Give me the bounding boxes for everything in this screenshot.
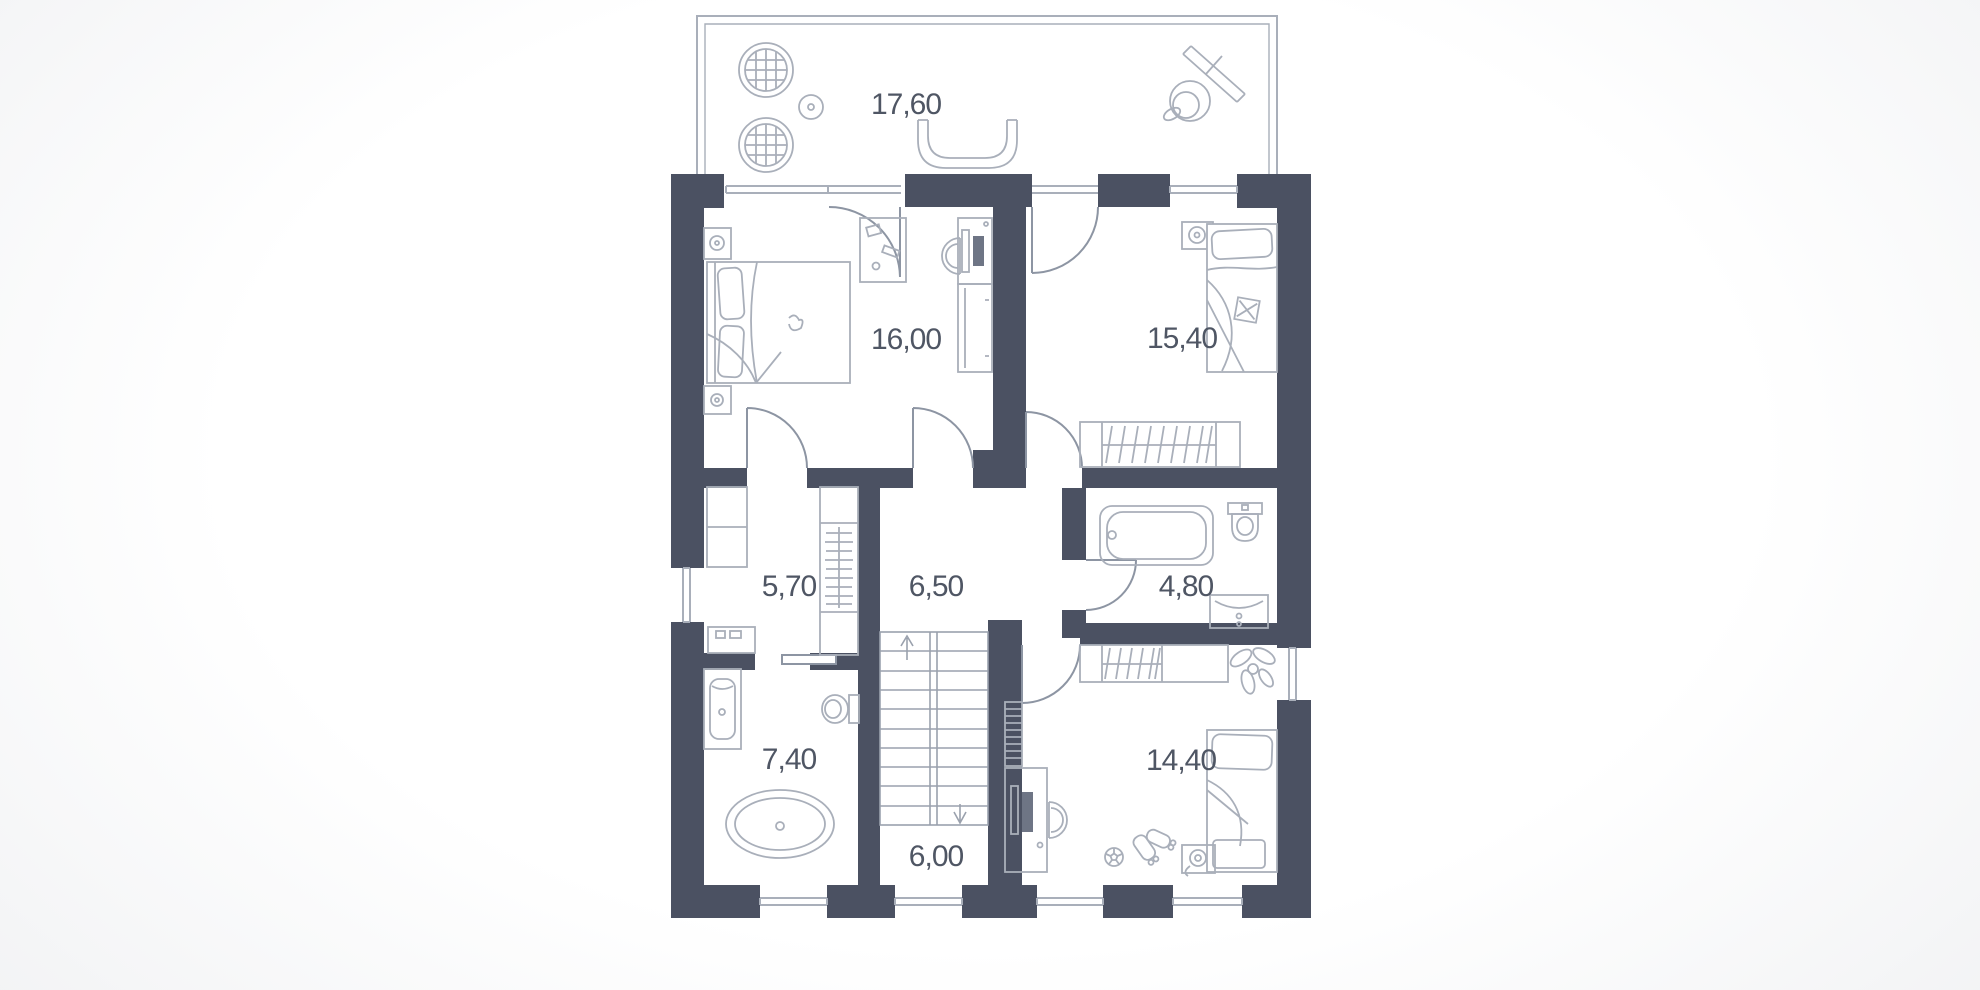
door-closet-to-bathroom-main (782, 655, 836, 664)
wall-segment (704, 468, 747, 488)
wall-segment (993, 207, 1026, 488)
area-label-stairs: 6,00 (909, 840, 964, 873)
floor-plan-canvas: 17,60 16,00 15,40 5,70 6,50 4,80 7,40 6,… (0, 0, 1980, 990)
hanging-chair-icon (739, 43, 793, 97)
hanging-chair-icon (739, 118, 793, 172)
wall-segment (1277, 700, 1311, 885)
wall-segment (1082, 468, 1277, 488)
wall-segment (671, 885, 760, 918)
wall-segment (1062, 488, 1086, 560)
single-bed (1207, 730, 1277, 872)
wall-segment (1080, 623, 1277, 645)
double-bed (707, 262, 850, 383)
area-label-bedroom-right: 15,40 (1147, 322, 1217, 355)
wall-segment (1277, 208, 1311, 648)
wall-segment (671, 174, 724, 208)
area-label-terrace: 17,60 (871, 88, 941, 121)
wall-segment (905, 174, 1032, 207)
wall-segment (1103, 885, 1173, 918)
wall-segment (671, 208, 704, 568)
wall-segment (1242, 885, 1311, 918)
area-label-hallway: 6,50 (909, 570, 964, 603)
wall-segment (704, 653, 755, 670)
wall-segment (962, 885, 1037, 918)
single-bed (1207, 224, 1277, 372)
wall-segment (827, 885, 895, 918)
area-label-bathroom-main: 7,40 (762, 743, 817, 776)
wall-segment (807, 468, 913, 488)
wall-segment (1098, 174, 1170, 207)
wall-segment (671, 622, 704, 885)
area-label-closet: 5,70 (762, 570, 817, 603)
wall-segment (858, 488, 880, 885)
area-label-bedroom-child: 14,40 (1146, 744, 1216, 777)
wall-segment (1237, 174, 1311, 208)
area-label-bedroom-main: 16,00 (871, 323, 941, 356)
wall-segment (973, 450, 993, 488)
floor-plan-svg: 17,60 16,00 15,40 5,70 6,50 4,80 7,40 6,… (0, 0, 1980, 990)
area-label-bathroom-small: 4,80 (1159, 570, 1214, 603)
